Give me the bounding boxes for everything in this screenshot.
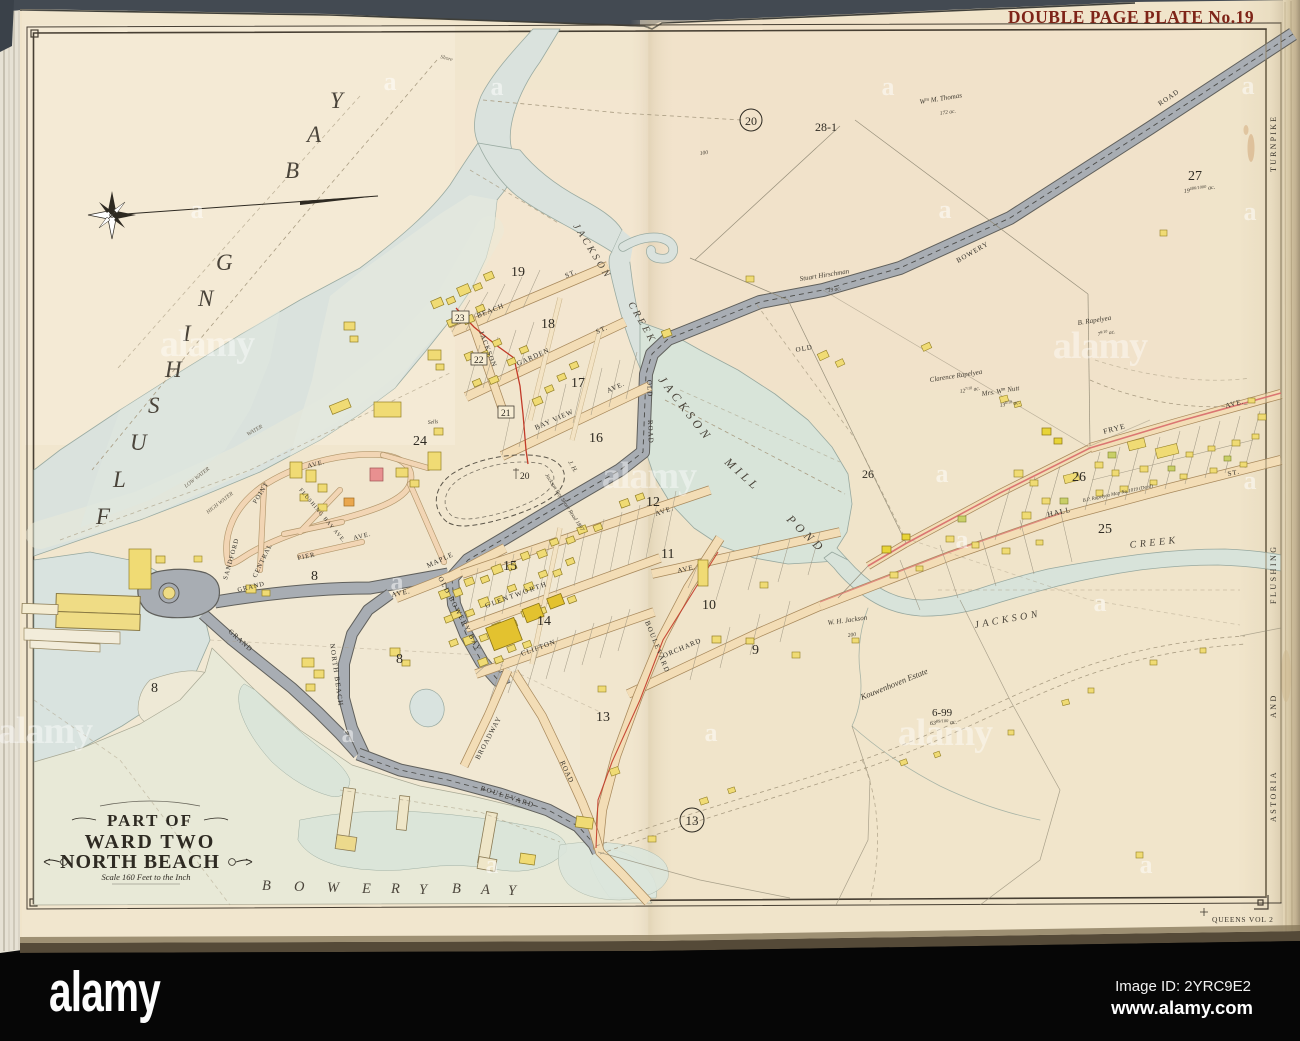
svg-text:a: a xyxy=(705,718,718,747)
svg-text:20: 20 xyxy=(745,114,757,128)
svg-text:12: 12 xyxy=(646,495,660,510)
svg-text:a: a xyxy=(1242,71,1255,100)
svg-text:B: B xyxy=(285,158,299,183)
svg-text:O: O xyxy=(294,879,305,895)
svg-text:a: a xyxy=(384,67,397,96)
svg-text:AND: AND xyxy=(1269,693,1278,718)
svg-text:FLUSHING: FLUSHING xyxy=(1269,544,1278,604)
svg-text:18: 18 xyxy=(541,317,555,332)
svg-text:Sells: Sells xyxy=(428,419,439,426)
svg-text:B: B xyxy=(452,881,461,897)
svg-text:a: a xyxy=(936,459,949,488)
svg-text:22: 22 xyxy=(474,356,484,366)
svg-text:a: a xyxy=(1140,850,1153,879)
svg-text:a: a xyxy=(1244,197,1257,226)
svg-text:a: a xyxy=(491,72,504,101)
svg-text:L: L xyxy=(112,467,126,492)
svg-text:a: a xyxy=(956,525,969,554)
svg-text:a: a xyxy=(1244,466,1257,495)
svg-text:a: a xyxy=(391,567,404,596)
svg-text:10: 10 xyxy=(702,598,716,613)
svg-text:A: A xyxy=(305,122,322,147)
svg-text:200: 200 xyxy=(847,632,856,639)
svg-text:26: 26 xyxy=(1072,470,1086,485)
svg-text:20: 20 xyxy=(520,472,530,482)
svg-text:S: S xyxy=(148,393,160,418)
svg-text:E: E xyxy=(361,881,371,897)
svg-text:PART OF: PART OF xyxy=(107,811,193,830)
svg-text:8: 8 xyxy=(311,569,318,584)
svg-text:R: R xyxy=(390,881,400,897)
svg-text:9: 9 xyxy=(752,643,759,658)
svg-text:11: 11 xyxy=(661,547,674,562)
svg-text:alamy: alamy xyxy=(0,710,93,752)
svg-text:W: W xyxy=(327,880,341,896)
svg-text:G: G xyxy=(216,250,233,275)
svg-text:N: N xyxy=(197,286,215,311)
svg-text:Image ID: 2YRC9E2: Image ID: 2YRC9E2 xyxy=(1115,978,1251,995)
svg-text:21: 21 xyxy=(501,409,511,419)
svg-text:a: a xyxy=(939,195,952,224)
svg-text:13: 13 xyxy=(596,710,610,725)
svg-text:alamy: alamy xyxy=(898,712,993,754)
svg-text:19: 19 xyxy=(511,265,525,280)
svg-text:TURNPIKE: TURNPIKE xyxy=(1269,115,1278,172)
svg-text:QUEENS VOL 2: QUEENS VOL 2 xyxy=(1212,915,1274,924)
svg-text:ASTORIA: ASTORIA xyxy=(1269,770,1278,822)
svg-text:alamy: alamy xyxy=(602,455,697,497)
svg-text:a: a xyxy=(342,719,355,748)
svg-text:WARD TWO: WARD TWO xyxy=(85,831,216,853)
svg-text:F: F xyxy=(95,504,111,529)
svg-text:8: 8 xyxy=(151,681,158,696)
svg-text:27: 27 xyxy=(1188,169,1202,184)
svg-text:A: A xyxy=(480,882,490,898)
svg-text:a: a xyxy=(882,72,895,101)
svg-text:25: 25 xyxy=(1098,522,1112,537)
svg-text:15: 15 xyxy=(503,559,517,574)
svg-text:a: a xyxy=(1094,588,1107,617)
svg-text:B: B xyxy=(262,878,271,894)
svg-text:ROAD: ROAD xyxy=(646,420,655,444)
svg-text:8: 8 xyxy=(396,652,403,667)
svg-text:Scale 160 Feet to the Inch: Scale 160 Feet to the Inch xyxy=(102,872,191,882)
svg-text:100: 100 xyxy=(699,150,708,157)
svg-text:Y: Y xyxy=(330,88,345,113)
svg-text:U: U xyxy=(130,430,148,455)
svg-text:NORTH BEACH: NORTH BEACH xyxy=(60,851,220,873)
svg-text:alamy: alamy xyxy=(160,323,255,365)
svg-text:alamy: alamy xyxy=(49,962,161,1024)
svg-text:24: 24 xyxy=(413,434,427,449)
svg-text:26: 26 xyxy=(862,467,874,481)
svg-text:a: a xyxy=(486,850,499,879)
svg-text:DOUBLE PAGE PLATE No.19: DOUBLE PAGE PLATE No.19 xyxy=(1008,7,1254,27)
svg-text:alamy: alamy xyxy=(1053,325,1148,367)
svg-text:OLD: OLD xyxy=(645,380,654,398)
svg-text:14: 14 xyxy=(537,614,551,629)
svg-text:23: 23 xyxy=(455,314,465,324)
svg-text:17: 17 xyxy=(571,376,585,391)
svg-text:13: 13 xyxy=(686,813,699,828)
svg-text:28-1: 28-1 xyxy=(815,120,837,134)
svg-text:16: 16 xyxy=(589,431,603,446)
svg-text:a: a xyxy=(191,195,204,224)
svg-text:www.alamy.com: www.alamy.com xyxy=(1110,997,1253,1018)
